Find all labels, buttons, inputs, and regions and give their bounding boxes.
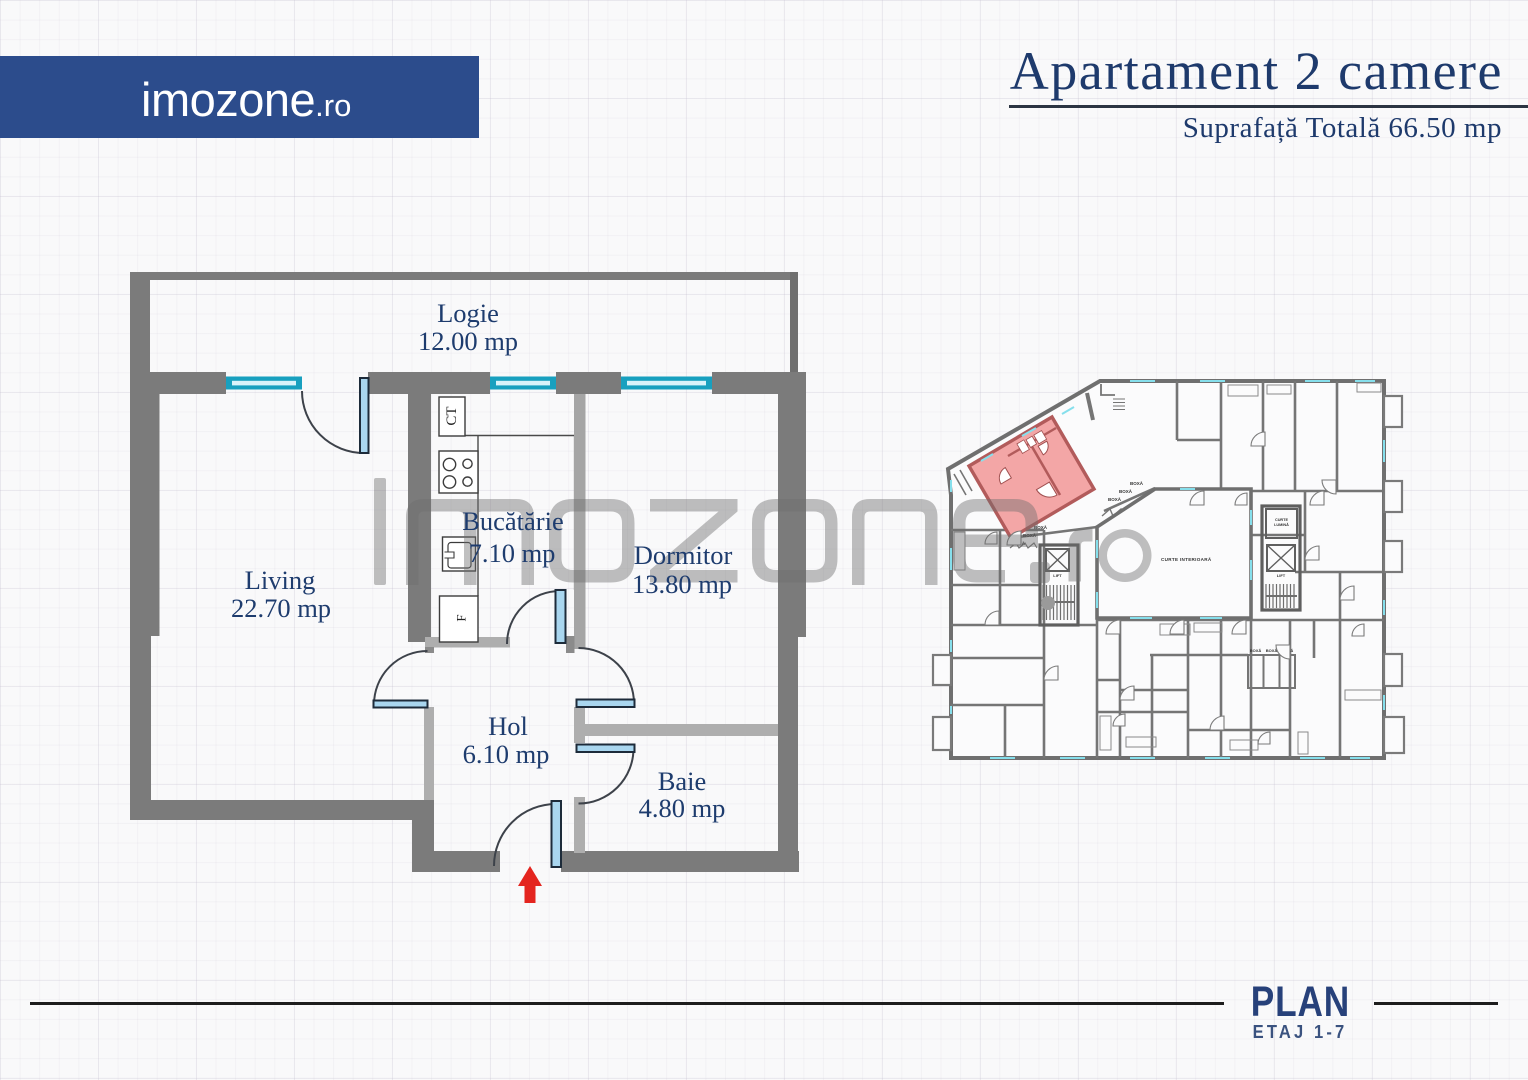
svg-text:LIFT: LIFT xyxy=(1277,573,1286,578)
svg-text:Hol: Hol xyxy=(488,711,528,741)
svg-text:BOXĂ: BOXĂ xyxy=(1119,488,1133,494)
svg-text:Bucătărie: Bucătărie xyxy=(462,506,564,536)
svg-text:BOXĂ: BOXĂ xyxy=(1266,648,1278,653)
svg-text:22.70 mp: 22.70 mp xyxy=(231,593,331,623)
svg-text:BOXĂ: BOXĂ xyxy=(1130,480,1144,486)
svg-text:4.80 mp: 4.80 mp xyxy=(639,793,726,823)
svg-text:12.00 mp: 12.00 mp xyxy=(418,326,518,356)
svg-text:Living: Living xyxy=(245,565,316,595)
svg-text:CT: CT xyxy=(444,406,460,425)
svg-text:LIFT: LIFT xyxy=(1053,573,1062,578)
svg-text:F: F xyxy=(454,614,469,621)
svg-text:CURTE INTERIOARĂ: CURTE INTERIOARĂ xyxy=(1161,556,1212,562)
svg-text:Baie: Baie xyxy=(658,766,707,796)
svg-text:LUMINĂ: LUMINĂ xyxy=(1274,522,1289,527)
svg-text:7.10 mp: 7.10 mp xyxy=(469,538,556,568)
svg-text:CURTE: CURTE xyxy=(1275,518,1289,522)
svg-text:Dormitor: Dormitor xyxy=(634,540,733,570)
svg-text:BOXĂ: BOXĂ xyxy=(1108,496,1122,502)
svg-text:13.80 mp: 13.80 mp xyxy=(632,569,732,599)
svg-text:BOXĂ: BOXĂ xyxy=(1250,648,1262,653)
svg-text:6.10 mp: 6.10 mp xyxy=(463,739,550,769)
svg-text:Logie: Logie xyxy=(437,298,499,328)
